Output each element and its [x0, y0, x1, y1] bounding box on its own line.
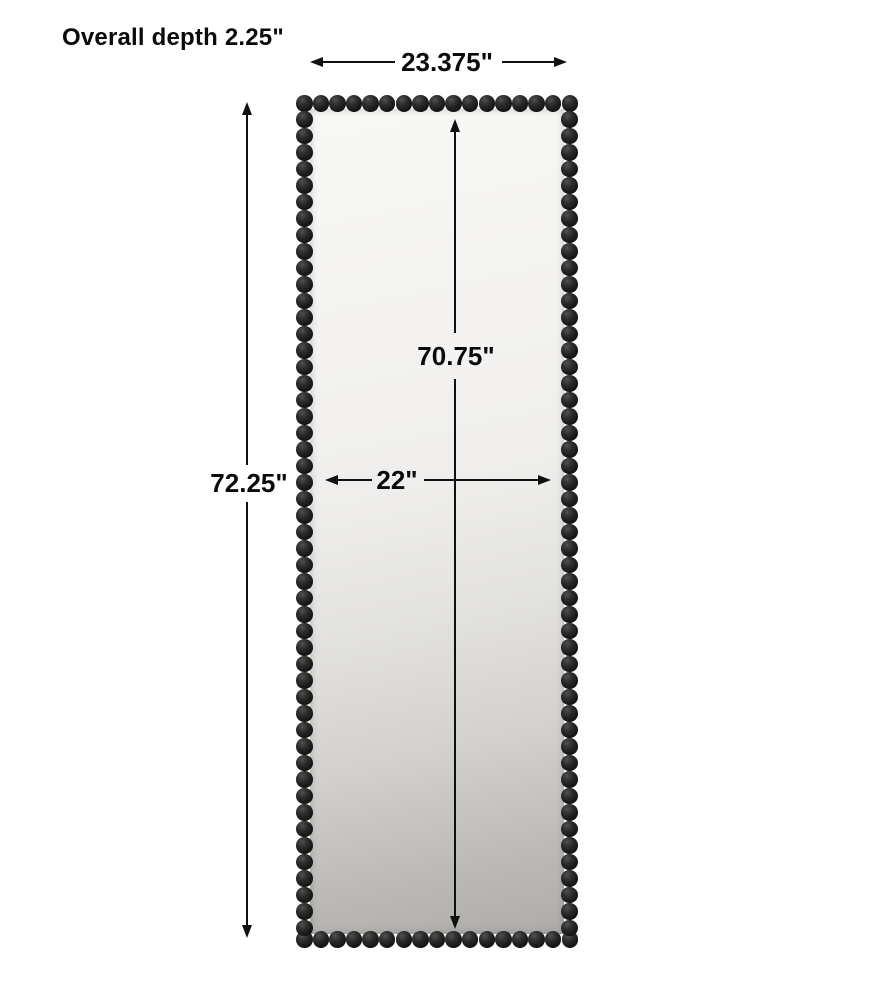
bead: [296, 161, 313, 178]
bead: [296, 804, 313, 821]
bead: [561, 689, 578, 706]
arrow-down-icon: [242, 925, 252, 938]
bead: [561, 672, 578, 689]
dimension-diagram: Overall depth 2.25" 23.375" 72.25" 70.75…: [0, 0, 875, 1000]
arrow-down-icon: [450, 916, 460, 929]
bead: [296, 573, 313, 590]
bead: [412, 931, 429, 948]
bead: [561, 474, 578, 491]
bead: [561, 326, 578, 343]
inner-width-label: 22": [362, 465, 432, 496]
bead: [296, 474, 313, 491]
bead: [296, 788, 313, 805]
bead: [561, 309, 578, 326]
bead: [296, 854, 313, 871]
bead: [561, 128, 578, 145]
bead: [561, 788, 578, 805]
bead: [313, 931, 330, 948]
bead: [296, 111, 313, 128]
bead: [429, 95, 446, 112]
bead: [561, 524, 578, 541]
bead-col-right: [561, 111, 578, 932]
bead: [479, 95, 496, 112]
bead: [296, 128, 313, 145]
bead: [296, 738, 313, 755]
bead: [561, 441, 578, 458]
bead: [561, 293, 578, 310]
bead: [329, 931, 346, 948]
bead: [346, 95, 363, 112]
bead: [296, 227, 313, 244]
bead: [561, 491, 578, 508]
dimension-line: [246, 113, 248, 465]
bead: [296, 870, 313, 887]
bead: [561, 408, 578, 425]
bead: [561, 837, 578, 854]
bead: [296, 359, 313, 376]
bead: [296, 656, 313, 673]
overall-depth-label: Overall depth 2.25": [62, 24, 284, 52]
bead: [561, 887, 578, 904]
bead: [528, 931, 545, 948]
bead: [296, 722, 313, 739]
bead: [296, 293, 313, 310]
bead: [296, 177, 313, 194]
bead: [561, 458, 578, 475]
bead: [561, 227, 578, 244]
bead: [296, 276, 313, 293]
bead: [561, 557, 578, 574]
bead: [296, 557, 313, 574]
arrow-right-icon: [538, 475, 551, 485]
bead: [296, 590, 313, 607]
bead: [296, 491, 313, 508]
dimension-line: [502, 61, 556, 63]
mirror-glass: [310, 109, 564, 934]
bead: [296, 95, 313, 112]
bead: [445, 95, 462, 112]
bead: [296, 144, 313, 161]
bead: [561, 821, 578, 838]
bead: [561, 870, 578, 887]
bead: [561, 540, 578, 557]
bead: [379, 931, 396, 948]
bead-col-left: [296, 111, 313, 932]
bead: [296, 606, 313, 623]
bead: [296, 210, 313, 227]
bead: [296, 243, 313, 260]
bead: [296, 771, 313, 788]
bead: [561, 771, 578, 788]
bead-row-bottom: [296, 931, 578, 948]
bead: [296, 507, 313, 524]
bead: [296, 309, 313, 326]
bead: [561, 606, 578, 623]
bead: [362, 95, 379, 112]
bead: [561, 425, 578, 442]
bead: [561, 573, 578, 590]
bead: [562, 95, 579, 112]
bead: [561, 804, 578, 821]
bead: [561, 854, 578, 871]
bead: [561, 639, 578, 656]
bead: [561, 920, 578, 937]
inner-height-label: 70.75": [406, 341, 506, 372]
bead: [379, 95, 396, 112]
dimension-line: [246, 502, 248, 926]
bead: [346, 931, 363, 948]
bead: [296, 194, 313, 211]
bead: [561, 359, 578, 376]
bead: [528, 95, 545, 112]
bead-row-top: [296, 95, 578, 112]
bead: [561, 243, 578, 260]
bead: [561, 722, 578, 739]
bead: [296, 705, 313, 722]
dimension-line: [454, 379, 456, 916]
bead: [296, 524, 313, 541]
bead: [561, 903, 578, 920]
bead: [561, 392, 578, 409]
bead: [561, 276, 578, 293]
bead: [462, 931, 479, 948]
bead: [296, 920, 313, 937]
bead: [412, 95, 429, 112]
bead: [296, 260, 313, 277]
bead: [561, 507, 578, 524]
overall-width-label: 23.375": [397, 47, 497, 78]
bead: [296, 903, 313, 920]
bead: [561, 144, 578, 161]
bead: [329, 95, 346, 112]
overall-height-label: 72.25": [199, 468, 299, 499]
bead: [296, 408, 313, 425]
bead: [561, 342, 578, 359]
bead: [561, 177, 578, 194]
bead: [296, 689, 313, 706]
bead: [561, 375, 578, 392]
bead: [512, 931, 529, 948]
bead: [462, 95, 479, 112]
bead: [561, 623, 578, 640]
bead: [296, 887, 313, 904]
bead: [479, 931, 496, 948]
dimension-line: [424, 479, 539, 481]
bead: [561, 590, 578, 607]
arrow-right-icon: [554, 57, 567, 67]
bead: [561, 111, 578, 128]
bead: [296, 672, 313, 689]
dimension-line: [454, 130, 456, 333]
bead: [296, 837, 313, 854]
bead: [396, 931, 413, 948]
mirror-frame: [296, 95, 578, 948]
bead: [561, 755, 578, 772]
bead: [296, 821, 313, 838]
bead: [296, 342, 313, 359]
bead: [362, 931, 379, 948]
bead: [396, 95, 413, 112]
bead: [296, 458, 313, 475]
bead: [495, 95, 512, 112]
bead: [429, 931, 446, 948]
bead: [561, 738, 578, 755]
bead: [561, 656, 578, 673]
bead: [296, 441, 313, 458]
bead: [561, 161, 578, 178]
bead: [313, 95, 330, 112]
bead: [296, 425, 313, 442]
bead: [296, 540, 313, 557]
bead: [561, 705, 578, 722]
bead: [545, 931, 562, 948]
bead: [296, 375, 313, 392]
dimension-line: [322, 61, 395, 63]
bead: [561, 194, 578, 211]
bead: [296, 755, 313, 772]
bead: [296, 639, 313, 656]
bead: [495, 931, 512, 948]
bead: [445, 931, 462, 948]
bead: [561, 210, 578, 227]
bead: [296, 623, 313, 640]
bead: [296, 326, 313, 343]
bead: [545, 95, 562, 112]
bead: [561, 260, 578, 277]
bead: [296, 392, 313, 409]
bead: [512, 95, 529, 112]
